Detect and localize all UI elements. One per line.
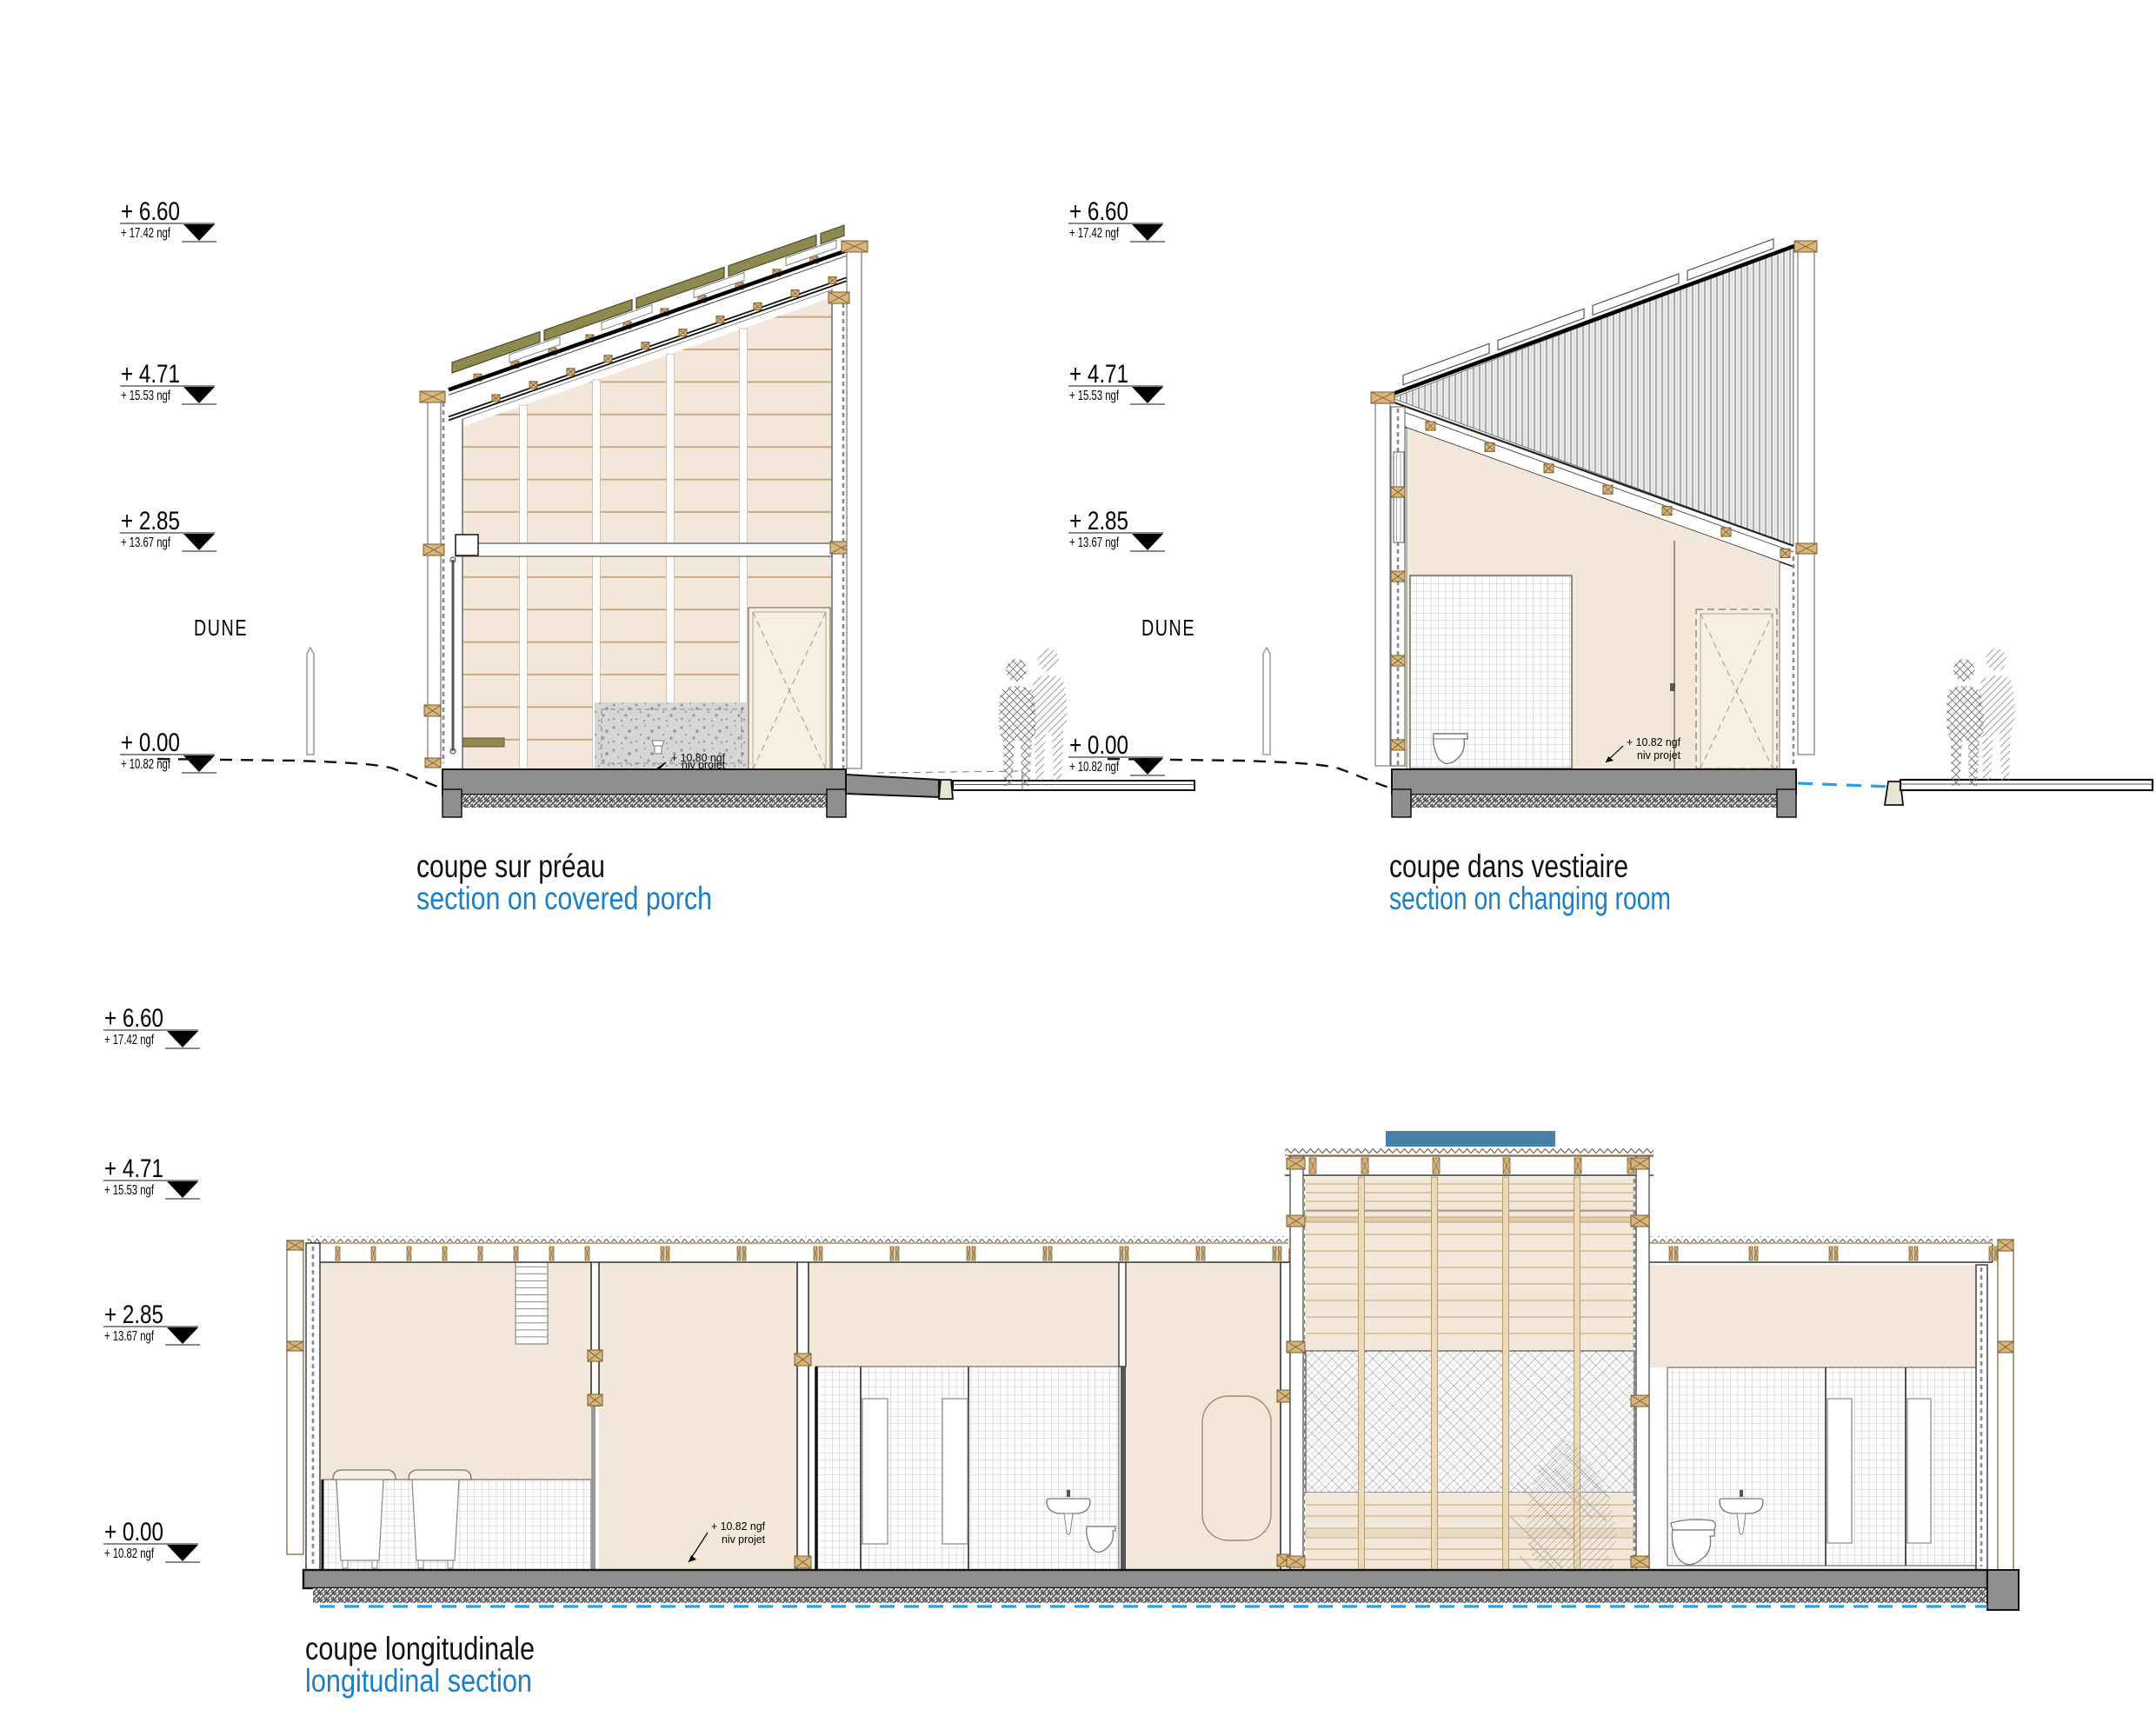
svg-text:+ 2.85: + 2.85 <box>1069 507 1128 535</box>
svg-text:+ 13.67 ngf: + 13.67 ngf <box>121 535 171 550</box>
svg-text:+ 6.60: + 6.60 <box>104 1004 163 1033</box>
svg-text:+ 2.85: + 2.85 <box>121 507 180 535</box>
svg-text:+ 17.42 ngf: + 17.42 ngf <box>1069 226 1120 241</box>
svg-text:section on covered porch: section on covered porch <box>416 881 712 916</box>
svg-text:+ 15.53 ngf: + 15.53 ngf <box>1069 389 1120 403</box>
svg-text:+ 2.85: + 2.85 <box>104 1300 163 1329</box>
svg-text:+ 6.60: + 6.60 <box>121 197 180 226</box>
svg-text:+ 17.42 ngf: + 17.42 ngf <box>121 226 171 241</box>
svg-text:niv projet: niv projet <box>1637 749 1681 762</box>
svg-text:+ 0.00: + 0.00 <box>104 1518 163 1546</box>
svg-text:+ 4.71: + 4.71 <box>104 1154 163 1183</box>
svg-text:+ 6.60: + 6.60 <box>1069 197 1128 226</box>
svg-text:+ 13.67 ngf: + 13.67 ngf <box>104 1329 155 1344</box>
svg-text:longitudinal section: longitudinal section <box>305 1663 532 1699</box>
svg-text:coupe longitudinale: coupe longitudinale <box>305 1631 535 1666</box>
svg-text:+ 15.53 ngf: + 15.53 ngf <box>121 389 171 403</box>
svg-text:+ 17.42 ngf: + 17.42 ngf <box>104 1033 155 1048</box>
svg-text:+ 15.53 ngf: + 15.53 ngf <box>104 1183 155 1198</box>
svg-text:+ 0.00: + 0.00 <box>121 728 180 757</box>
svg-text:+ 13.67 ngf: + 13.67 ngf <box>1069 535 1120 550</box>
svg-text:niv projet: niv projet <box>722 1533 766 1546</box>
svg-text:DUNE: DUNE <box>194 615 248 641</box>
svg-text:+ 4.71: + 4.71 <box>1069 360 1128 389</box>
svg-text:+ 10.82 ngf: + 10.82 ngf <box>1069 760 1120 775</box>
svg-text:+ 10.82 ngf: + 10.82 ngf <box>711 1520 766 1533</box>
svg-text:+ 10.82 ngf: + 10.82 ngf <box>1627 736 1681 748</box>
svg-text:DUNE: DUNE <box>1141 615 1195 641</box>
svg-text:+ 4.71: + 4.71 <box>121 360 180 389</box>
svg-text:coupe dans vestiaire: coupe dans vestiaire <box>1389 848 1628 884</box>
svg-text:coupe sur préau: coupe sur préau <box>416 848 605 884</box>
svg-text:+ 10.82 ngf: + 10.82 ngf <box>104 1546 155 1561</box>
svg-text:section on changing room: section on changing room <box>1389 881 1671 916</box>
svg-text:+ 0.00: + 0.00 <box>1069 731 1128 760</box>
